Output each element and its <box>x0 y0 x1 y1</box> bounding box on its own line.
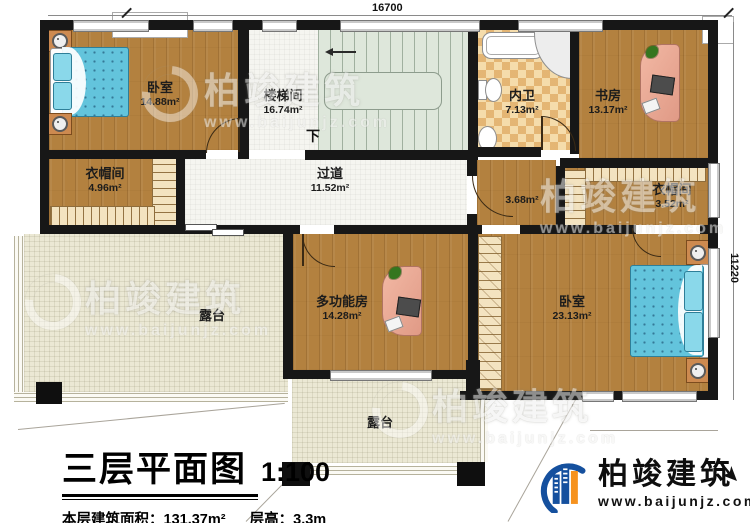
wall-bedroom2-top-b <box>520 225 636 234</box>
window <box>708 248 720 338</box>
computer-monitor <box>396 296 421 317</box>
room-label-study: 书房 13.17m² <box>588 88 627 116</box>
nightstand <box>48 113 72 135</box>
lamp-icon <box>690 363 706 379</box>
door-leaf <box>238 118 240 152</box>
brand-logo: 柏竣建筑 www.baijunjz.com <box>538 455 750 513</box>
wall-bedroom2-top-c <box>700 225 718 234</box>
pillow <box>684 271 703 311</box>
wall-cloak2-left <box>556 166 565 228</box>
terrace-left-floor <box>24 234 288 392</box>
wall-stair-bathroom <box>468 20 478 160</box>
wall-study-bottom <box>560 158 718 168</box>
door-leaf <box>541 116 543 150</box>
room-label-passage: 3.68m² <box>505 194 538 207</box>
plan-area-line: 本层建筑面积：131.37m² 层高：3.3m <box>62 508 330 523</box>
wall-cloak1-right <box>176 159 185 234</box>
room-label-bedroom1: 卧室 14.88m² <box>140 80 179 108</box>
window-terrace-door <box>330 370 432 381</box>
pillow <box>684 312 703 352</box>
window <box>340 20 480 32</box>
nightstand <box>686 358 710 383</box>
nightstand <box>686 240 710 265</box>
stair-landing <box>324 72 442 110</box>
dimension-top-value: 16700 <box>368 2 407 14</box>
wall-multi-top-b <box>334 225 480 234</box>
stairs-down-label: 下 <box>306 126 320 146</box>
wall-stair-bottom <box>305 150 478 160</box>
room-label-hallway: 过道 11.52m² <box>311 166 350 194</box>
room-label-bedroom2: 卧室 23.13m² <box>552 294 591 322</box>
leader-line <box>18 403 285 430</box>
pillow <box>53 82 72 110</box>
window <box>708 163 720 218</box>
brand-url: www.baijunjz.com <box>598 493 750 509</box>
stair-direction-arrow <box>325 48 333 56</box>
window <box>622 391 697 402</box>
room-label-cloak1: 衣帽间 4.96m² <box>85 166 124 194</box>
terrace-post <box>36 382 62 404</box>
stair-direction-line <box>332 51 356 53</box>
room-label-terrace-bottom: 露台 <box>367 415 393 431</box>
plan-title: 三层平面图 <box>62 441 247 492</box>
wardrobe <box>478 236 502 390</box>
sliding-door <box>212 229 244 236</box>
lamp-icon <box>690 245 706 261</box>
window <box>582 391 614 402</box>
window <box>262 20 297 32</box>
title-block: 三层平面图1:100 本层建筑面积：131.37m² 层高：3.3m <box>62 441 330 523</box>
room-label-multi: 多功能房 14.28m² <box>316 294 368 322</box>
wall-multi-bedroom2 <box>468 225 478 379</box>
terrace-bottom-railing-right <box>480 400 488 462</box>
wall-multi-left <box>283 225 293 379</box>
wall-hallway-terrace <box>40 225 290 234</box>
title-rule-thin <box>62 499 258 500</box>
floor-plan-canvas: 下 卧室 14.88m² 楼梯间 16.74m² <box>0 0 750 523</box>
brand-logo-icon <box>538 455 590 513</box>
title-rule <box>62 494 258 497</box>
wall-bathroom-bottom <box>478 147 541 157</box>
toilet <box>485 78 502 102</box>
dimension-line-right <box>733 22 734 400</box>
wall-outer-left <box>40 20 49 234</box>
window <box>73 20 149 32</box>
room-label-bathroom: 内卫 7.13m² <box>505 88 538 116</box>
room-label-stairwell: 楼梯间 16.74m² <box>263 88 302 116</box>
wardrobe <box>564 170 586 228</box>
lamp-icon <box>52 116 68 132</box>
door-leaf <box>302 234 304 266</box>
leader-line <box>590 430 718 431</box>
room-label-terrace-left: 露台 <box>199 308 225 324</box>
room-label-cloak2: 衣帽间 3.52m² <box>652 182 691 210</box>
plan-scale: 1:100 <box>261 457 330 488</box>
window <box>518 20 603 32</box>
wardrobe <box>152 156 179 230</box>
computer-monitor <box>650 74 675 95</box>
wall-bedroom1-bottom <box>40 150 206 159</box>
pillow <box>53 53 72 81</box>
wall-corner-join <box>466 360 480 400</box>
wall-passage-left-a <box>467 150 477 176</box>
dimension-line-top <box>48 15 732 16</box>
terrace-post <box>457 462 485 486</box>
window <box>193 20 233 32</box>
dimension-right-value: 11220 <box>728 253 740 283</box>
terrace-left-railing-left <box>14 236 24 392</box>
